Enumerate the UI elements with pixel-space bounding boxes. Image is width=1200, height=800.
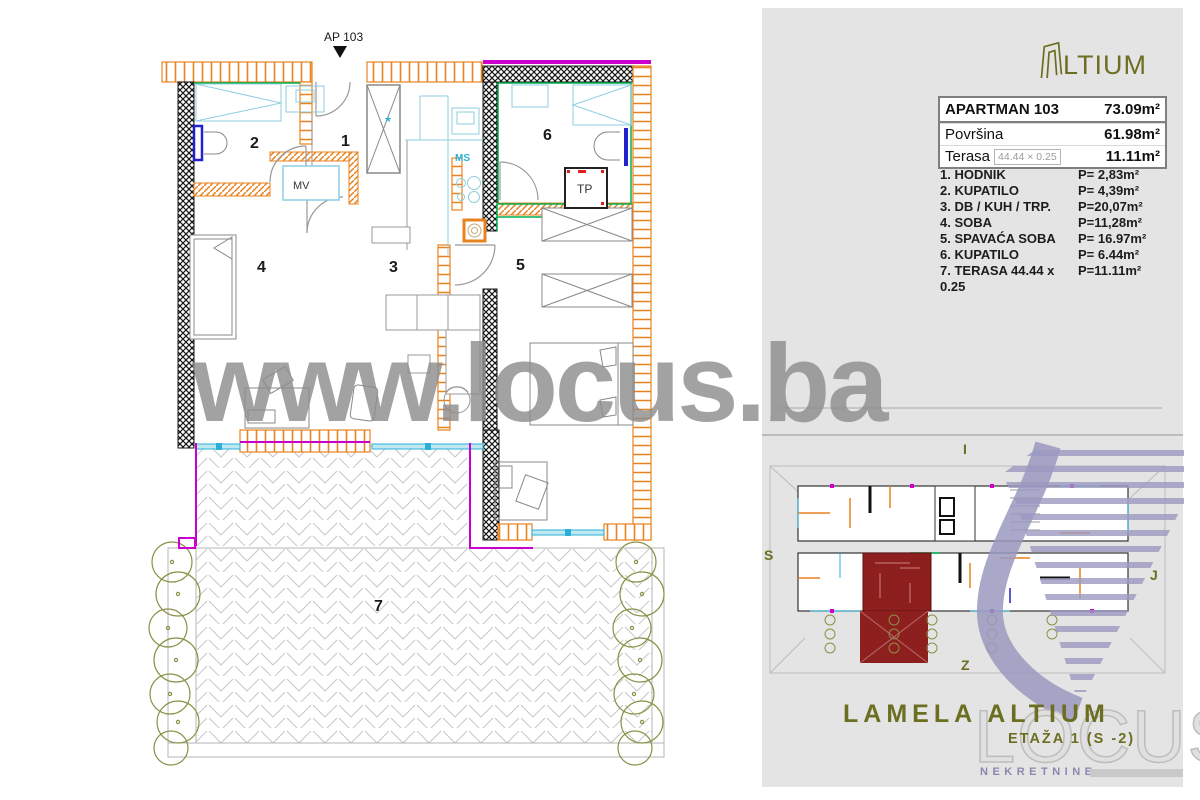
- room-list-item: 2. KUPATILO P= 4,39m²: [940, 183, 1164, 199]
- nekretnine-label: NEKRETNINE: [980, 766, 1097, 778]
- room1-number: 1: [341, 133, 350, 150]
- povrsina-value: 61.98m²: [1104, 126, 1160, 143]
- room-list-item: 1. HODNIK P= 2,83m²: [940, 167, 1164, 183]
- apartment-title: APARTMAN 103: [945, 101, 1104, 118]
- room-list-item: 7. TERASA 44.44 x 0.25 P=11.11m²: [940, 263, 1164, 295]
- room-label: 2. KUPATILO: [940, 183, 1078, 199]
- room-label: 3. DB / KUH / TRP.: [940, 199, 1078, 215]
- room-area: P=11.11m²: [1078, 263, 1164, 295]
- altium-logo-icon: [1037, 40, 1063, 80]
- room-label: 5. SPAVAĆA SOBA: [940, 231, 1078, 247]
- room-list-item: 6. KUPATILO P= 6.44m²: [940, 247, 1164, 263]
- room-list-item: 4. SOBA P=11,28m²: [940, 215, 1164, 231]
- altium-logo-text: LTIUM: [1063, 50, 1147, 80]
- compass-left: S: [764, 547, 773, 563]
- terrace-paving: [196, 446, 652, 743]
- room-label: 1. HODNIK: [940, 167, 1078, 183]
- hallway-furniture: [367, 85, 400, 173]
- star-symbol: ★: [384, 114, 392, 124]
- room-label: 7. TERASA 44.44 x 0.25: [940, 263, 1078, 295]
- room7-number: 7: [374, 598, 383, 615]
- highlighted-unit: [860, 553, 931, 663]
- room-list: 1. HODNIK P= 2,83m² 2. KUPATILO P= 4,39m…: [940, 167, 1164, 295]
- washing-machine: [283, 166, 339, 200]
- room6-number: 6: [543, 127, 552, 144]
- room-label: 6. KUPATILO: [940, 247, 1078, 263]
- altium-logo: LTIUM: [1037, 40, 1147, 80]
- apartment-total-area: 73.09m²: [1104, 101, 1160, 118]
- room-area: P=20,07m²: [1078, 199, 1164, 215]
- room3-number: 3: [389, 259, 398, 276]
- lamela-title: LAMELA ALTIUM: [843, 700, 1110, 729]
- room-area: P= 4,39m²: [1078, 183, 1164, 199]
- apartment-table: APARTMAN 103 73.09m² Površina 61.98m² Te…: [938, 96, 1167, 169]
- terasa-note: 44.44 × 0.25: [994, 149, 1061, 165]
- room-list-item: 3. DB / KUH / TRP. P=20,07m²: [940, 199, 1164, 215]
- room-area: P=11,28m²: [1078, 215, 1164, 231]
- room-area: P= 6.44m²: [1078, 247, 1164, 263]
- room-list-item: 5. SPAVAĆA SOBA P= 16.97m²: [940, 231, 1164, 247]
- floorplan-page: { "branding": { "altium_logo_text": "LTI…: [0, 0, 1200, 800]
- boiler: [464, 220, 485, 241]
- room2-number: 2: [250, 135, 259, 152]
- room5-number: 5: [516, 257, 525, 274]
- terasa-value: 11.11m²: [1106, 148, 1160, 165]
- povrsina-label: Površina: [945, 126, 1104, 143]
- terrace-edge: [168, 743, 664, 757]
- room-area: P= 2,83m²: [1078, 167, 1164, 183]
- nekretnine-bar: [1090, 769, 1183, 777]
- apartment-table-row: Terasa 44.44 × 0.25 11.11m²: [940, 145, 1165, 167]
- entrance-marker: AP 103: [324, 30, 363, 58]
- apartment-table-row: Površina 61.98m²: [940, 123, 1165, 145]
- terrace-area: [168, 446, 664, 757]
- kitchen-fixtures: [405, 96, 485, 255]
- terasa-label-text: Terasa: [945, 148, 990, 165]
- mv-label: MV: [293, 180, 310, 192]
- terasa-label: Terasa 44.44 × 0.25: [945, 148, 1106, 165]
- entrance-label: AP 103: [324, 30, 363, 44]
- watermark: www.locus.ba: [192, 320, 885, 447]
- bathroom6-fixtures: [512, 85, 631, 208]
- tp-label: TP: [577, 182, 592, 196]
- entrance-arrow-icon: [333, 46, 347, 58]
- room4-number: 4: [257, 259, 266, 276]
- room-label: 4. SOBA: [940, 215, 1078, 231]
- apartment-table-header: APARTMAN 103 73.09m²: [940, 98, 1165, 123]
- etaza-label: ETAŽA 1 (S -2): [1008, 731, 1135, 747]
- room-area: P= 16.97m²: [1078, 231, 1164, 247]
- ms-label: MS: [455, 153, 470, 164]
